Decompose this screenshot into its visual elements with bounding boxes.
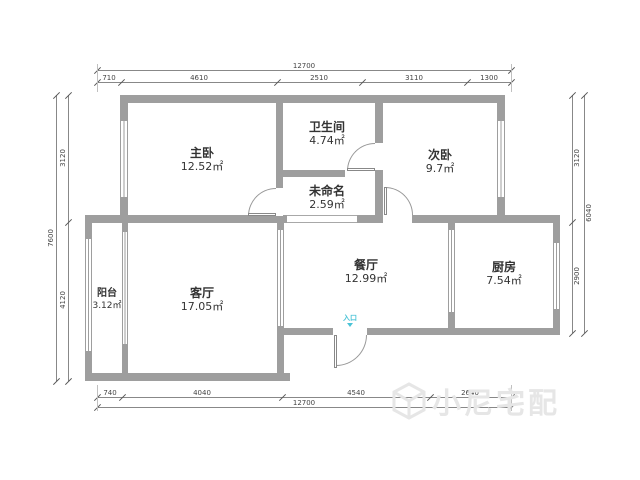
room-label-kitchen: 厨房 7.54㎡ <box>454 260 554 288</box>
dim-top-seg-3: 2510 <box>304 74 334 82</box>
room-label-bathroom: 卫生间 4.74㎡ <box>279 120 375 148</box>
dim-right-seg-1: 3120 <box>573 140 581 176</box>
door-gap-bathroom <box>375 143 383 170</box>
dim-top-seg-5: 1300 <box>474 74 504 82</box>
dim-left-seg-1: 3120 <box>59 140 67 176</box>
opening-living-dining <box>277 229 284 327</box>
door-leaf-master <box>248 213 276 216</box>
extension-line <box>97 385 98 411</box>
door-leaf-second-bedroom <box>384 187 387 215</box>
extension-line <box>511 64 512 92</box>
door-leaf-entry <box>334 335 337 368</box>
dim-line-top-segments <box>97 82 511 83</box>
floor-plan: 入口 主卧 12.52㎡ 卫生间 4.74㎡ 次卧 9.7㎡ 未命名 2.59㎡… <box>0 0 640 480</box>
window-kitchen <box>553 242 560 310</box>
dim-line-right-segments <box>572 95 573 333</box>
wall-bottom-dining <box>284 328 560 335</box>
wall-top <box>120 95 505 103</box>
dim-left-total: 7600 <box>47 220 55 256</box>
entry-label: 入口 <box>336 313 364 323</box>
door-arc-entry <box>336 335 367 366</box>
room-label-living: 客厅 17.05㎡ <box>152 286 252 314</box>
window-second-bedroom <box>497 120 505 198</box>
dim-top-seg-1: 710 <box>94 74 124 82</box>
dim-bottom-seg-2: 4040 <box>187 389 217 397</box>
door-gap-entry <box>333 328 367 335</box>
door-leaf-bathroom <box>347 168 375 171</box>
room-label-dining: 餐厅 12.99㎡ <box>316 258 416 286</box>
door-arc-master <box>248 188 276 216</box>
dim-top-seg-2: 4610 <box>184 74 214 82</box>
room-label-unnamed: 未命名 2.59㎡ <box>279 184 375 212</box>
opening-corridor-dining <box>287 215 357 223</box>
wall-bath-bottom <box>283 170 345 177</box>
door-gap-second-bedroom <box>383 215 412 223</box>
dim-line-left-total <box>56 95 57 381</box>
room-label-balcony: 阳台 3.12㎡ <box>86 288 128 312</box>
dim-tick <box>569 330 576 337</box>
dim-tick <box>65 378 72 385</box>
dim-tick <box>53 378 60 385</box>
dim-bottom-seg-3: 4540 <box>341 389 371 397</box>
watermark-brand: 小尼宅配 <box>432 380 560 422</box>
wall-bottom-living <box>85 373 290 381</box>
window-master <box>120 120 128 198</box>
door-arc-second-bedroom <box>385 187 413 215</box>
room-label-second-bedroom: 次卧 9.7㎡ <box>390 148 490 176</box>
entry-arrow-icon <box>347 323 353 327</box>
dim-top-total: 12700 <box>284 62 324 70</box>
dim-line-left-segments <box>68 95 69 381</box>
dim-line-top-total <box>97 70 511 71</box>
room-label-master-bedroom: 主卧 12.52㎡ <box>152 146 252 174</box>
cube-logo-icon <box>392 382 426 420</box>
dim-top-seg-4: 3110 <box>399 74 429 82</box>
dim-right-seg-2: 2900 <box>573 258 581 294</box>
dim-left-seg-2: 4120 <box>59 282 67 318</box>
dim-bottom-seg-1: 740 <box>95 389 125 397</box>
dim-bottom-total: 12700 <box>284 399 324 407</box>
dim-tick <box>581 330 588 337</box>
extension-line <box>97 64 98 92</box>
dim-right-total: 6040 <box>585 195 593 231</box>
watermark: 小尼宅配 <box>392 380 560 422</box>
